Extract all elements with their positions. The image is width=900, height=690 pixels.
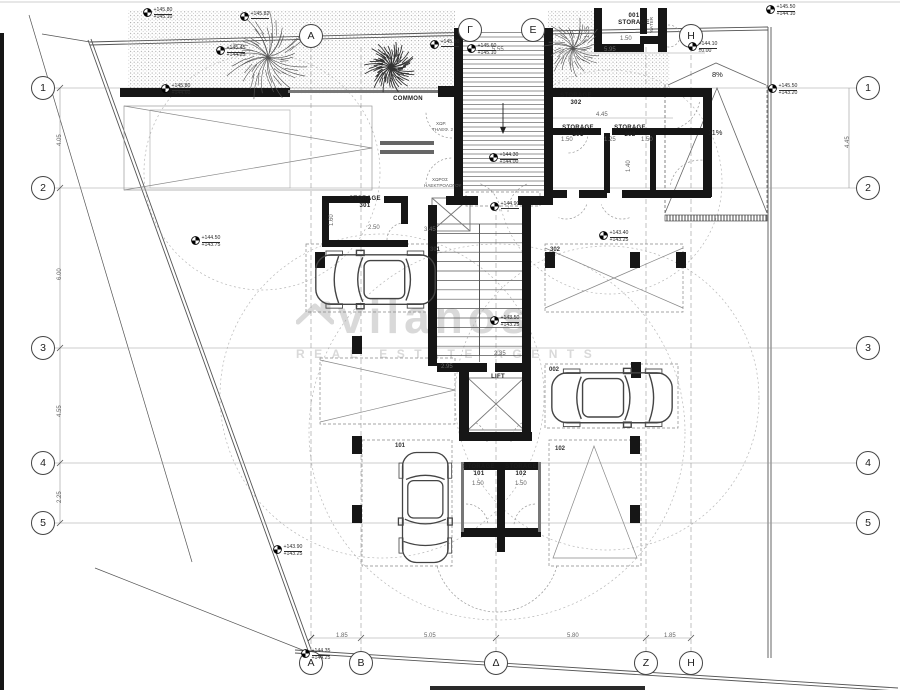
car-parking-301 bbox=[316, 250, 435, 308]
parking-stalls bbox=[124, 106, 683, 566]
gravel-texture bbox=[128, 10, 670, 94]
car-parking-002 bbox=[552, 368, 672, 427]
floor-plan-drawing bbox=[0, 0, 900, 690]
ramp-corridor bbox=[463, 30, 544, 206]
dimension-ticks bbox=[57, 85, 694, 641]
car-parking-101 bbox=[398, 453, 452, 563]
floor-plan-sheet: vilanos REAL ESTATE AGENTS bbox=[0, 0, 900, 690]
